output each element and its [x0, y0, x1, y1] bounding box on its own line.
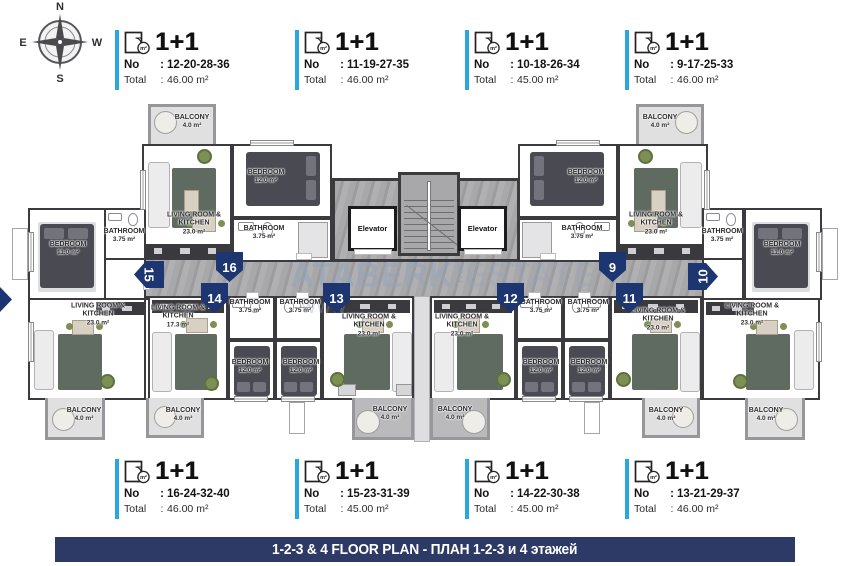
- unit-plan-icon: m²: [474, 31, 500, 55]
- label-balcony-unit9: BALCONY4.0 m²: [643, 114, 678, 130]
- banner-text: 1-2-3 & 4 FLOOR PLAN - ПЛАН 1-2-3 и 4 эт…: [272, 542, 577, 558]
- card-accent-bar: [465, 459, 469, 519]
- label-bathroom-unit11: BATHROOM3.75 m²: [568, 299, 609, 315]
- card-accent-bar: [465, 30, 469, 90]
- label-balcony-unit16: BALCONY4.0 m²: [175, 114, 210, 130]
- floor-plan-banner: 1-2-3 & 4 FLOOR PLAN - ПЛАН 1-2-3 и 4 эт…: [55, 537, 795, 562]
- elevator-right: Elevator: [458, 206, 507, 251]
- label-living-unit13: LIVING ROOM &KITCHEN23.0 m²: [342, 314, 396, 339]
- label-bedroom-unit10: BEDROOM11.0 m²: [764, 241, 801, 257]
- unit-type: 1+1: [155, 28, 199, 57]
- label-bathroom-unit9: BATHROOM3.75 m²: [562, 225, 603, 241]
- unit-area: 45.00 m²: [517, 74, 558, 86]
- label-living-unit9: LIVING ROOM &KITCHEN23.0 m²: [629, 212, 683, 237]
- svg-text:N: N: [56, 1, 64, 13]
- svg-text:W: W: [92, 37, 103, 49]
- unit-plan-icon: m²: [304, 460, 330, 484]
- svg-text:m²: m²: [490, 45, 497, 52]
- unit-card-top-3: m² 1+1 No:10-18-26-34 Total:45.00 m²: [465, 28, 615, 94]
- label-bathroom-unit14: BATHROOM3.75 m²: [230, 299, 271, 315]
- unit-numbers: 12-20-28-36: [167, 59, 230, 71]
- svg-text:m²: m²: [140, 45, 147, 52]
- label-bedroom-unit12: BEDROOM12.0 m²: [523, 359, 560, 375]
- unit-numbers: 10-18-26-34: [517, 59, 580, 71]
- label-bathroom-unit12: BATHROOM3.75 m²: [521, 299, 562, 315]
- edge-arrow: [0, 287, 12, 312]
- unit-numbers: 11-19-27-35: [347, 59, 409, 71]
- unit-card-top-2: m² 1+1 No:11-19-27-35 Total:46.00 m²: [295, 28, 445, 94]
- unit-numbers: 16-24-32-40: [167, 488, 230, 500]
- card-accent-bar: [295, 30, 299, 90]
- unit-plan-icon: m²: [634, 460, 660, 484]
- unit-type: 1+1: [505, 28, 549, 57]
- unit-card-bottom-1: m² 1+1 No:16-24-32-40 Total:46.00 m²: [115, 457, 265, 523]
- ac-ledge: [584, 402, 600, 434]
- svg-text:m²: m²: [320, 474, 327, 481]
- label-living-unit14: LIVING ROOM &KITCHEN17.3 m²: [151, 305, 205, 330]
- label-balcony-unit15: BALCONY4.0 m²: [67, 407, 102, 423]
- unit-numbers: 13-21-29-37: [677, 488, 740, 500]
- label-bedroom-unit13: BEDROOM12.0 m²: [283, 359, 320, 375]
- svg-text:m²: m²: [650, 474, 657, 481]
- entrance-walkway: [414, 296, 430, 442]
- card-accent-bar: [295, 459, 299, 519]
- ac-ledge: [12, 228, 28, 280]
- card-accent-bar: [625, 30, 629, 90]
- unit-area: 46.00 m²: [167, 74, 208, 86]
- svg-text:m²: m²: [320, 45, 327, 52]
- label-balcony-unit12: BALCONY4.0 m²: [438, 406, 473, 422]
- unit-area: 46.00 m²: [677, 503, 718, 515]
- unit-numbers: 9-17-25-33: [677, 59, 733, 71]
- svg-text:E: E: [19, 37, 26, 49]
- label-balcony-unit10: BALCONY4.0 m²: [749, 407, 784, 423]
- unit-area: 46.00 m²: [347, 74, 388, 86]
- unit-type: 1+1: [505, 457, 549, 486]
- label-living-unit16: LIVING ROOM &KITCHEN23.0 m²: [167, 212, 221, 237]
- unit-type: 1+1: [335, 457, 379, 486]
- unit-type: 1+1: [665, 457, 709, 486]
- label-balcony-unit14: BALCONY4.0 m²: [166, 407, 201, 423]
- label-bathroom-unit15: BATHROOM3.75 m²: [104, 228, 145, 244]
- label-balcony-unit13: BALCONY4.0 m²: [373, 406, 408, 422]
- unit-type: 1+1: [665, 28, 709, 57]
- unit-plan-icon: m²: [474, 460, 500, 484]
- label-bedroom-unit9: BEDROOM12.0 m²: [568, 169, 605, 185]
- unit-plan-icon: m²: [124, 460, 150, 484]
- unit-area: 45.00 m²: [347, 503, 388, 515]
- unit-numbers: 14-22-30-38: [517, 488, 580, 500]
- card-accent-bar: [625, 459, 629, 519]
- unit-type: 1+1: [155, 457, 199, 486]
- label-bathroom-unit13: BATHROOM3.75 m²: [280, 299, 321, 315]
- label-living-unit12: LIVING ROOM &KITCHEN23.0 m²: [435, 314, 489, 339]
- unit-area: 46.00 m²: [167, 503, 208, 515]
- floor-plan-sheet: N S E W m² 1+1 No:12-20-28-36 Total:46.0…: [0, 0, 850, 566]
- label-bedroom-unit14: BEDROOM12.0 m²: [232, 359, 269, 375]
- unit-area: 46.00 m²: [677, 74, 718, 86]
- unit-card-bottom-3: m² 1+1 No:14-22-30-38 Total:45.00 m²: [465, 457, 615, 523]
- label-bedroom-unit15: BEDROOM11.0 m²: [50, 241, 87, 257]
- label-bathroom-unit10: BATHROOM3.75 m²: [702, 228, 743, 244]
- card-accent-bar: [115, 459, 119, 519]
- card-accent-bar: [115, 30, 119, 90]
- elevator-left: Elevator: [348, 206, 397, 251]
- unit-plan-icon: m²: [304, 31, 330, 55]
- label-bedroom-unit16: BEDROOM12.0 m²: [248, 169, 285, 185]
- ac-ledge: [822, 228, 838, 280]
- svg-text:S: S: [56, 73, 63, 84]
- label-balcony-unit11: BALCONY4.0 m²: [649, 407, 684, 423]
- label-living-unit10: LIVING ROOM &KITCHEN23.0 m²: [725, 303, 779, 328]
- compass-rose-icon: N S E W: [14, 0, 106, 84]
- svg-text:m²: m²: [140, 474, 147, 481]
- unit-plan-icon: m²: [124, 31, 150, 55]
- unit-card-top-4: m² 1+1 No:9-17-25-33 Total:46.00 m²: [625, 28, 775, 94]
- unit-area: 45.00 m²: [517, 503, 558, 515]
- unit-card-top-1: m² 1+1 No:12-20-28-36 Total:46.00 m²: [115, 28, 265, 94]
- unit-card-bottom-4: m² 1+1 No:13-21-29-37 Total:46.00 m²: [625, 457, 775, 523]
- ac-ledge: [289, 402, 305, 434]
- label-living-unit15: LIVING ROOM &KITCHEN23.0 m²: [71, 303, 125, 328]
- unit-type: 1+1: [335, 28, 379, 57]
- label-bedroom-unit11: BEDROOM12.0 m²: [571, 359, 608, 375]
- svg-text:m²: m²: [650, 45, 657, 52]
- label-living-unit11: LIVING ROOM &KITCHEN23.0 m²: [631, 308, 685, 333]
- unit-plan-icon: m²: [634, 31, 660, 55]
- label-bathroom-unit16: BATHROOM3.75 m²: [244, 225, 285, 241]
- unit-card-bottom-2: m² 1+1 No:15-23-31-39 Total:45.00 m²: [295, 457, 445, 523]
- unit-numbers: 15-23-31-39: [347, 488, 410, 500]
- ac-unit: [396, 384, 412, 396]
- svg-text:m²: m²: [490, 474, 497, 481]
- staircase: [398, 172, 460, 256]
